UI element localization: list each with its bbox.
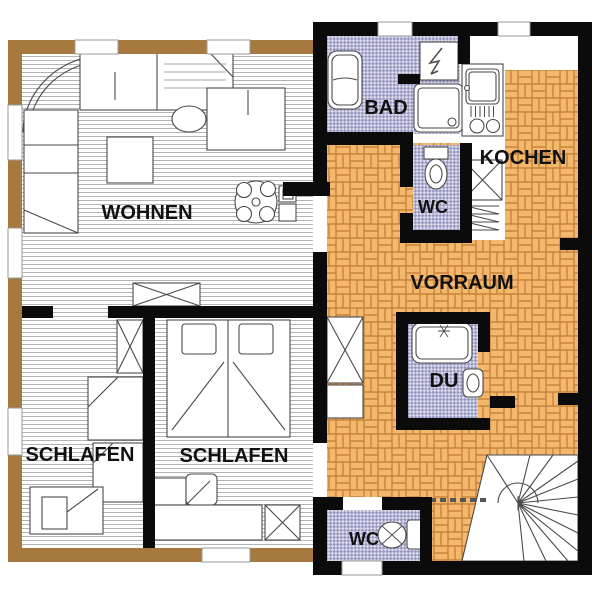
wardrobe-left-bedroom (117, 320, 143, 373)
window (8, 105, 22, 160)
window (75, 40, 118, 54)
room-label-schlafen-right: SCHLAFEN (180, 445, 289, 467)
room-label-wc-lower: WC (349, 529, 379, 549)
room-kochen-floor (505, 70, 578, 150)
window (207, 40, 250, 54)
window (342, 561, 382, 575)
room-label-wc-upper: WC (418, 197, 448, 217)
room-label-vorraum: VORRAUM (410, 272, 513, 294)
floor-plan-canvas: WOHNEN SCHLAFEN SCHLAFEN BAD WC KOCHEN V… (0, 0, 600, 600)
coffee-table (107, 137, 153, 183)
cabinet-left-bedroom-1 (88, 377, 143, 440)
toilet-upper (424, 147, 448, 189)
armchair (172, 106, 206, 132)
room-label-schlafen-left: SCHLAFEN (26, 444, 135, 466)
wohnen-closet (133, 283, 200, 306)
window (8, 408, 22, 455)
window (378, 22, 412, 36)
vorraum-closet (327, 317, 363, 418)
floor-plan-svg: WOHNEN SCHLAFEN SCHLAFEN BAD WC KOCHEN V… (0, 0, 600, 600)
kitchen-counter (462, 64, 503, 136)
room-label-wohnen: WOHNEN (101, 202, 192, 224)
sideboard (207, 88, 285, 150)
double-bed (167, 320, 290, 437)
window (202, 548, 250, 562)
dining-table (235, 181, 277, 223)
square-tub (414, 84, 463, 132)
shower-tray (412, 323, 472, 363)
wardrobe-right-bedroom (265, 505, 300, 540)
window (8, 228, 22, 278)
room-label-kochen: KOCHEN (480, 147, 567, 169)
room-label-bad: BAD (364, 97, 407, 119)
door-opening-wc-lower (343, 497, 382, 510)
window (498, 22, 530, 36)
washing-machine (420, 42, 458, 80)
room-label-du: DU (430, 370, 459, 392)
du-sink (463, 369, 483, 397)
bed-left-bedroom (30, 487, 103, 534)
bathtub (328, 51, 362, 109)
kitchen-sink (465, 69, 500, 104)
